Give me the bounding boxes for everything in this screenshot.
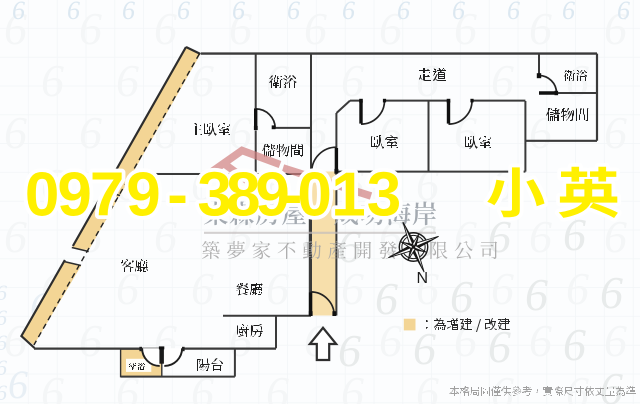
svg-text:6: 6	[563, 319, 586, 370]
svg-text:0979-389-013: 0979-389-013	[25, 161, 401, 230]
svg-text:6: 6	[562, 0, 575, 25]
svg-text:6: 6	[0, 380, 7, 404]
svg-text:6: 6	[507, 0, 520, 25]
svg-text:6: 6	[600, 363, 623, 404]
svg-text:6: 6	[232, 0, 245, 25]
svg-text:6: 6	[600, 267, 623, 318]
svg-text:6: 6	[450, 271, 473, 322]
svg-text:6: 6	[0, 330, 7, 355]
svg-text:6: 6	[452, 0, 465, 25]
svg-text:6: 6	[375, 273, 398, 324]
svg-text:6: 6	[67, 0, 80, 25]
svg-text:6: 6	[0, 355, 7, 380]
svg-text:6: 6	[525, 269, 548, 320]
svg-text:6: 6	[342, 0, 355, 25]
svg-text:6: 6	[287, 0, 300, 25]
svg-text:6: 6	[177, 0, 190, 25]
svg-text:6: 6	[338, 325, 361, 376]
svg-text:6: 6	[122, 0, 135, 25]
svg-text:6: 6	[0, 305, 7, 330]
svg-text:6: 6	[413, 323, 436, 374]
svg-text:6: 6	[617, 0, 630, 25]
svg-text:6: 6	[397, 0, 410, 25]
svg-text:N: N	[417, 270, 429, 287]
svg-text:6: 6	[8, 362, 28, 404]
svg-text:6: 6	[12, 0, 25, 25]
svg-text:6: 6	[0, 280, 7, 305]
